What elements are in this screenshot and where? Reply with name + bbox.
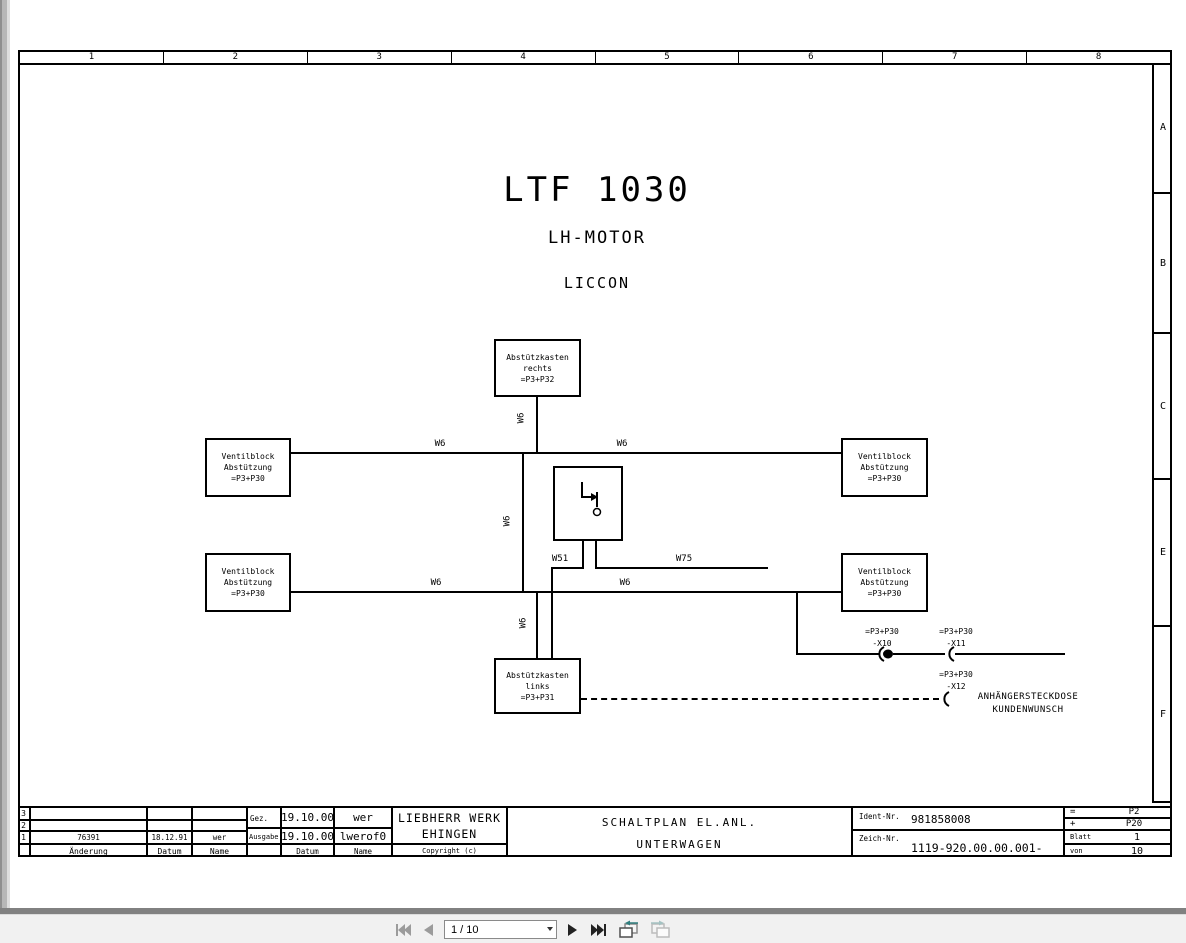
- wire-label-w6-vertical: W6: [518, 618, 528, 629]
- ref-von-cell: von 10: [1065, 845, 1172, 857]
- pdf-viewer-window: 1 2 3 4 5 6 7 8 A B C E F LTF 1030 LH-MO…: [0, 0, 1186, 943]
- wire-label-w6: W6: [406, 578, 466, 588]
- ref-equals-label: =: [1065, 808, 1098, 817]
- zeich-nr-label: Zeich-Nr.: [859, 834, 900, 843]
- next-page-icon: [566, 923, 580, 937]
- wire-w6-upper-bus: [291, 452, 841, 454]
- window-edge-strip: [0, 0, 10, 908]
- copyright-cell: Copyright (c): [393, 845, 508, 857]
- box-central-switch-symbol: [553, 466, 623, 541]
- gez-label: Gez.: [248, 808, 282, 829]
- wire-x12-dashed: [581, 698, 939, 700]
- wire-x10-x11-link: [893, 653, 945, 655]
- revision-row-number: 1: [18, 832, 31, 845]
- ref-equals-cell: = P2: [1065, 808, 1172, 819]
- revision-datum-cell: [148, 821, 193, 832]
- revision-header-datum: Datum: [148, 845, 193, 857]
- connector-name-x12: -X12: [926, 682, 986, 692]
- wire-w6-rechts-drop: [536, 397, 538, 454]
- ref-blatt-cell: Blatt 1: [1065, 831, 1172, 845]
- ref-equals-value: P2: [1098, 808, 1170, 817]
- last-page-icon: [590, 923, 607, 937]
- wire-w6-lower-bus: [291, 591, 841, 593]
- wire-label-w6: W6: [595, 578, 655, 588]
- wire-x10-run: [796, 653, 879, 655]
- wire-w75-run: [595, 567, 768, 569]
- wire-w75-box-drop: [595, 541, 597, 569]
- box-abstuetzkasten-links: Abstützkasten links =P3+P31: [494, 658, 581, 714]
- ref-blatt-value: 1: [1104, 832, 1170, 843]
- frame-row-label: A: [1154, 63, 1172, 194]
- note-anhaengersteckdose-line2: KUNDENWUNSCH: [972, 705, 1084, 715]
- gez-name-value: wer: [335, 808, 393, 829]
- box-abstuetzkasten-rechts: Abstützkasten rechts =P3+P32: [494, 339, 581, 397]
- wire-label-w6-vertical: W6: [516, 413, 526, 424]
- connector-name-x11: -X11: [928, 639, 984, 649]
- frame-column-label: 4: [452, 52, 596, 63]
- note-anhaengersteckdose-line1: ANHÄNGERSTECKDOSE: [972, 692, 1084, 702]
- company-cell: LIEBHERR WERK EHINGEN: [393, 808, 508, 845]
- previous-view-button[interactable]: [617, 922, 641, 938]
- page-number-field: [444, 920, 557, 939]
- frame-row-label: B: [1154, 194, 1172, 334]
- frame-column-label: 5: [596, 52, 740, 63]
- box-ventilblock-top-left: Ventilblock Abstützung =P3+P30: [205, 438, 291, 497]
- box-ventilblock-top-right: Ventilblock Abstützung =P3+P30: [841, 438, 928, 497]
- gez-datum-value: 19.10.00: [282, 808, 335, 829]
- wire-label-w51: W51: [540, 554, 580, 564]
- subtitle-lh-motor: LH-MOTOR: [300, 228, 894, 248]
- revision-aenderung-cell: [31, 821, 148, 832]
- revision-row-number: 2: [18, 821, 31, 832]
- box-ventilblock-bottom-left: Ventilblock Abstützung =P3+P30: [205, 553, 291, 612]
- revision-header-name: Name: [193, 845, 248, 857]
- wire-w51-box-drop: [582, 541, 584, 569]
- next-view-button[interactable]: [648, 922, 672, 938]
- first-page-button[interactable]: [394, 922, 412, 938]
- viewer-toolbar: [0, 914, 1186, 943]
- ref-plus-cell: + P20: [1065, 819, 1172, 831]
- revision-datum-cell: 18.12.91: [148, 832, 193, 845]
- revision-name-cell: [193, 821, 248, 832]
- pdf-page: 1 2 3 4 5 6 7 8 A B C E F LTF 1030 LH-MO…: [0, 0, 1186, 908]
- revision-aenderung-cell: 76391: [31, 832, 148, 845]
- revision-header-aenderung: Änderung: [31, 845, 148, 857]
- ref-von-label: von: [1065, 847, 1104, 855]
- frame-column-strip: 1 2 3 4 5 6 7 8: [18, 50, 1172, 65]
- subtitle-liccon: LICCON: [300, 274, 894, 292]
- ref-blatt-label: Blatt: [1065, 833, 1104, 841]
- ident-nr-value: 981858008: [911, 813, 971, 826]
- previous-page-button[interactable]: [419, 922, 437, 938]
- revision-datum-cell: [148, 808, 193, 821]
- next-page-button[interactable]: [564, 922, 582, 938]
- ref-plus-label: +: [1065, 819, 1098, 829]
- doc-title-cell: SCHALTPLAN EL.ANL. UNTERWAGEN: [508, 808, 853, 857]
- revision-name-cell: [193, 808, 248, 821]
- frame-column-label: 1: [20, 52, 164, 63]
- frame-column-label: 3: [308, 52, 452, 63]
- frame-column-label: 8: [1027, 52, 1170, 63]
- ident-nr-label: Ident-Nr.: [859, 812, 900, 821]
- ausgabe-datum-value: 19.10.00: [282, 829, 335, 845]
- connector-plug-x10-icon: [883, 648, 895, 660]
- wire-w6-trunk: [522, 454, 524, 593]
- revision-row-number: 3: [18, 808, 31, 821]
- connector-name-x10: -X10: [854, 639, 910, 649]
- page-number-input[interactable]: [445, 921, 556, 938]
- doc-title-line2: UNTERWAGEN: [508, 838, 851, 851]
- revision-aenderung-cell: [31, 808, 148, 821]
- ref-plus-value: P20: [1098, 819, 1170, 829]
- wire-w6-links-drop: [536, 593, 538, 658]
- frame-column-label: 2: [164, 52, 308, 63]
- sheet-titles: LTF 1030 LH-MOTOR LICCON: [300, 170, 894, 292]
- box-ventilblock-bottom-right: Ventilblock Abstützung =P3+P30: [841, 553, 928, 612]
- switch-symbol-icon: [555, 468, 621, 539]
- connector-ref-x12: =P3+P30: [926, 670, 986, 680]
- previous-page-icon: [421, 923, 435, 937]
- zeich-nr-value: 1119-920.00.00.001-001: [911, 841, 1063, 857]
- page-dropdown-caret-icon[interactable]: [547, 927, 553, 931]
- company-line2: EHINGEN: [393, 827, 506, 841]
- first-page-icon: [395, 923, 412, 937]
- frame-row-label: E: [1154, 480, 1172, 627]
- connector-ref-x10: =P3+P30: [854, 627, 910, 637]
- ausgabe-name-value: lwerof0: [335, 829, 393, 845]
- wire-label-w6-vertical: W6: [502, 516, 512, 527]
- wire-x10-drop: [796, 593, 798, 655]
- company-line1: LIEBHERR WERK: [393, 811, 506, 825]
- wire-label-w75: W75: [664, 554, 704, 564]
- frame-column-label: 7: [883, 52, 1027, 63]
- zeich-nr-cell: Zeich-Nr. 1119-920.00.00.001-001: [853, 831, 1065, 857]
- last-page-button[interactable]: [589, 922, 607, 938]
- issue-empty-cell: [248, 845, 282, 857]
- connector-ref-x11: =P3+P30: [928, 627, 984, 637]
- revision-corner-cell: [18, 845, 31, 857]
- ausgabe-label: Ausgabe: [248, 829, 282, 845]
- issue-header-datum: Datum: [282, 845, 335, 857]
- wire-label-w6: W6: [410, 439, 470, 449]
- wire-label-w6: W6: [592, 439, 652, 449]
- doc-title-line1: SCHALTPLAN EL.ANL.: [508, 816, 851, 829]
- connector-socket-x12-icon: [939, 690, 951, 708]
- previous-view-icon: [618, 920, 640, 939]
- next-view-icon: [649, 920, 671, 939]
- frame-column-label: 6: [739, 52, 883, 63]
- frame-row-strip: A B C E F: [1152, 63, 1172, 803]
- frame-row-label: C: [1154, 334, 1172, 480]
- wire-x11-tail: [955, 653, 1065, 655]
- wire-w51-drop: [551, 569, 553, 658]
- ref-von-value: 10: [1104, 846, 1170, 857]
- revision-name-cell: wer: [193, 832, 248, 845]
- main-title: LTF 1030: [300, 170, 894, 210]
- wire-w51-jog: [551, 567, 584, 569]
- issue-header-name: Name: [335, 845, 393, 857]
- ident-nr-cell: Ident-Nr. 981858008: [853, 808, 1065, 831]
- frame-row-label: F: [1154, 627, 1172, 803]
